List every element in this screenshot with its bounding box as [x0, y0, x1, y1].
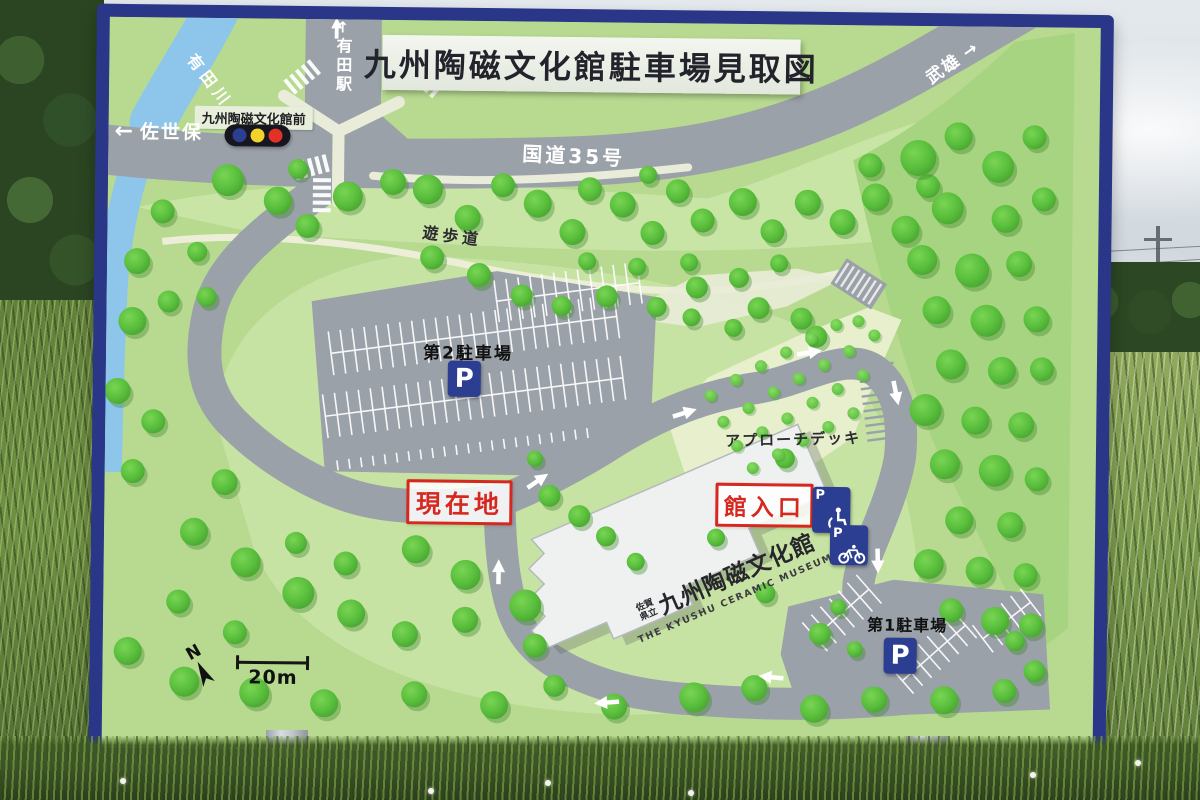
- traffic-light-icon: [224, 124, 290, 147]
- parking-icon: P: [883, 638, 916, 674]
- museum-entrance-marker: 館入口: [715, 483, 813, 528]
- up-arrow-icon: ↑: [336, 20, 349, 35]
- station-label: ↑ 有田駅: [326, 20, 359, 94]
- foreground-grass: [0, 736, 1200, 800]
- route35-label: 国道35号: [522, 138, 626, 172]
- map-sign-board: 九州陶磁文化館駐車場見取図 有田川 ↑ 有田駅 九州陶磁文化館前 ←佐世保 国道…: [88, 4, 1114, 772]
- current-location-marker: 現在地: [406, 479, 513, 525]
- parking-icon: P: [448, 361, 481, 397]
- scale-label: 20m: [248, 666, 297, 689]
- map-area: 九州陶磁文化館駐車場見取図 有田川 ↑ 有田駅 九州陶磁文化館前 ←佐世保 国道…: [102, 17, 1101, 759]
- utility-pole-arm: [1144, 238, 1172, 241]
- museum-prefecture-label: 佐賀 県立: [635, 597, 660, 623]
- signal-blue-lamp: [232, 128, 246, 142]
- background-trees: [0, 0, 104, 330]
- sasebo-direction-label: ←佐世保: [114, 117, 203, 145]
- signal-yellow-lamp: [250, 128, 264, 142]
- left-arrow-icon: ←: [114, 119, 135, 144]
- sign-title: 九州陶磁文化館駐車場見取図: [382, 35, 801, 95]
- parking1-label: 第1駐車場: [867, 611, 947, 636]
- approach-deck-label: アプローチデッキ: [725, 427, 861, 451]
- signal-red-lamp: [268, 129, 282, 143]
